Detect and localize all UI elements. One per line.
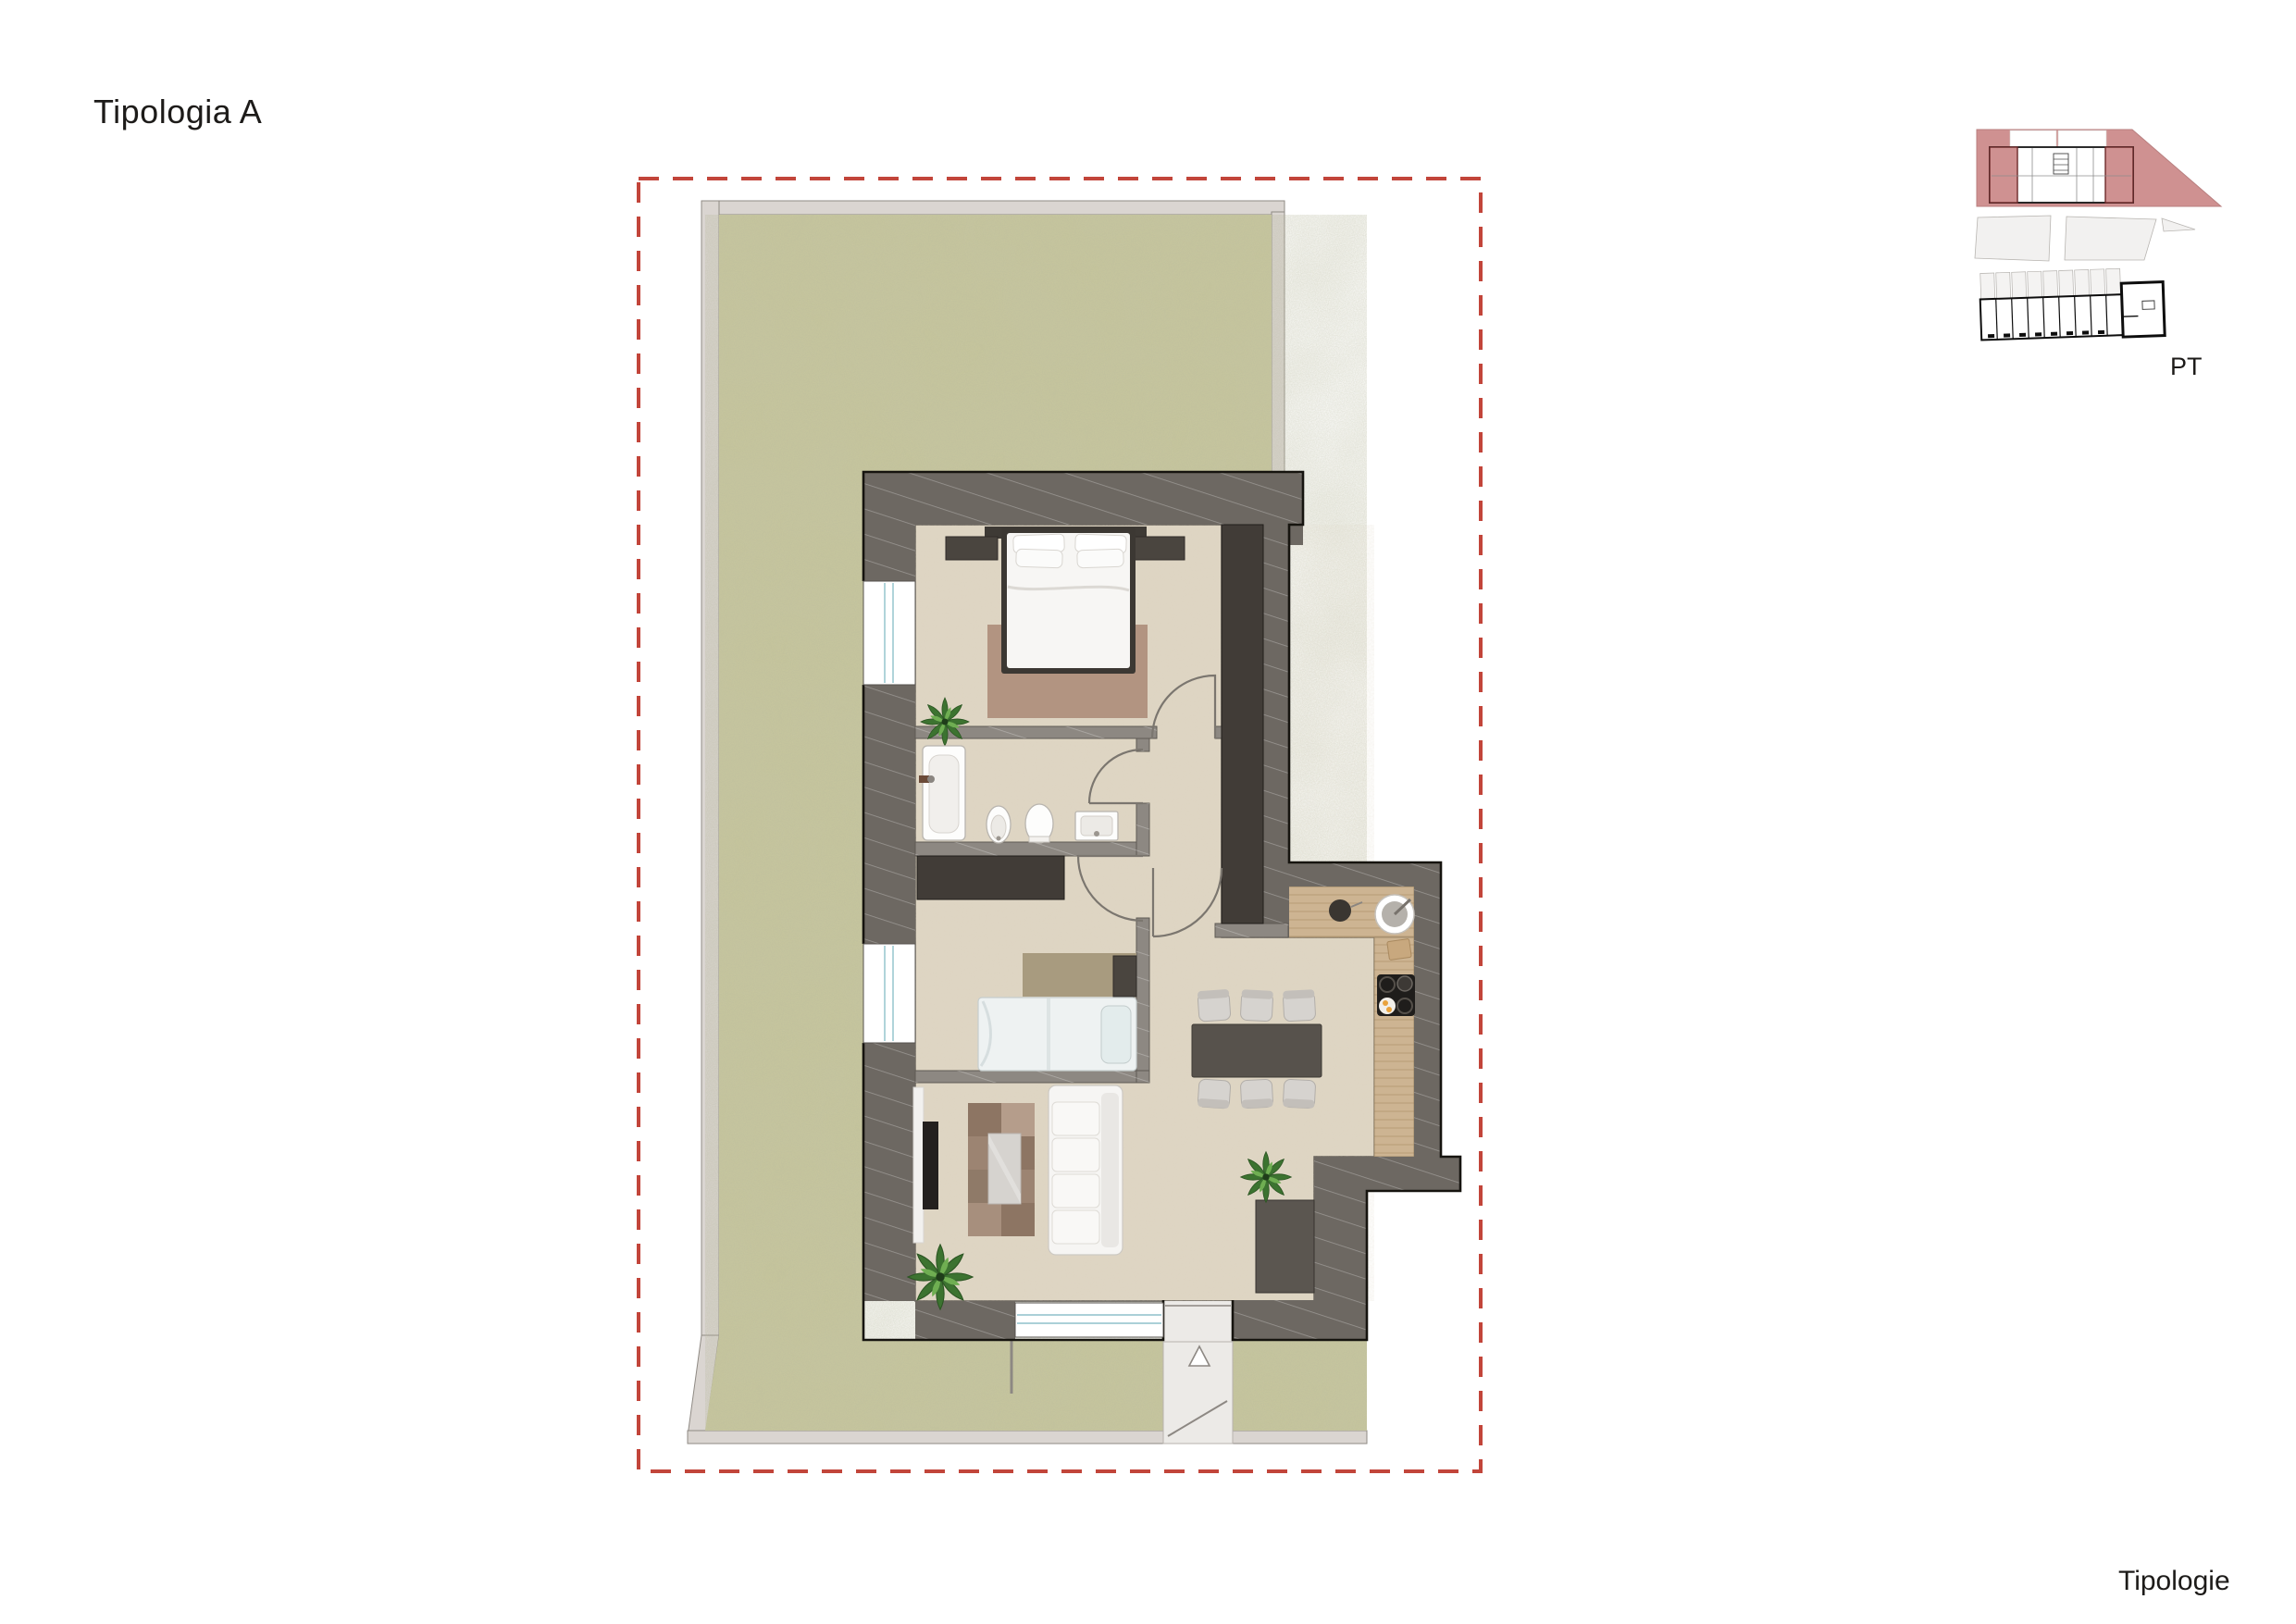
locator-upper-building (1977, 130, 2221, 206)
nightstand-left (946, 537, 998, 560)
frying-pan-icon (1379, 998, 1396, 1014)
sofa (1049, 1085, 1123, 1255)
locator-highlight-left-unit (1990, 147, 2017, 203)
tv-icon (923, 1122, 938, 1209)
cutting-board (1387, 938, 1412, 960)
locator-highlight-right-unit (2105, 147, 2133, 203)
tv-lowboard (913, 1087, 924, 1243)
plant-icon (1241, 1152, 1292, 1203)
nightstand (1113, 956, 1136, 997)
sofa-cushion (1052, 1138, 1099, 1172)
entry-porch (1163, 1301, 1233, 1342)
garden-border-right (1272, 212, 1285, 472)
sofa-cushion (1052, 1174, 1099, 1208)
garden-border-top (701, 201, 1285, 215)
window-bedroom-1 (863, 581, 915, 685)
cooktop (1377, 974, 1415, 1016)
garden-border-left (701, 201, 719, 1338)
bathtub-basin (929, 755, 959, 833)
floor-plan-drawing (0, 0, 2296, 1624)
garden-border-bottom (688, 1431, 1367, 1444)
wardrobe (917, 856, 1064, 899)
terrace-column (1256, 1200, 1314, 1293)
plant-icon (908, 1245, 973, 1309)
floor-plan-sheet: Tipologia A PT Tipologie (0, 0, 2296, 1624)
structural-dark-band (1222, 525, 1263, 924)
pan-icon (1397, 976, 1412, 991)
washbasin-faucet-icon (1094, 831, 1099, 837)
sofa-cushion (1052, 1102, 1099, 1135)
pot-icon (1329, 899, 1351, 922)
nightstand-right (1133, 537, 1185, 560)
plant-icon (921, 698, 969, 746)
locator-map (1975, 130, 2221, 341)
locator-row-building (1980, 267, 2165, 342)
locator-parcels (1975, 216, 2195, 261)
pillow (1016, 549, 1063, 568)
window-bedroom-2 (863, 944, 915, 1043)
window-living-room (1015, 1303, 1163, 1337)
pillow (1077, 549, 1124, 568)
dining-area (1192, 989, 1322, 1109)
sofa-back (1101, 1093, 1119, 1247)
toilet-base (1029, 837, 1049, 842)
pillow (1101, 1006, 1131, 1063)
sofa-cushion (1052, 1210, 1099, 1244)
dining-table (1192, 1024, 1322, 1077)
